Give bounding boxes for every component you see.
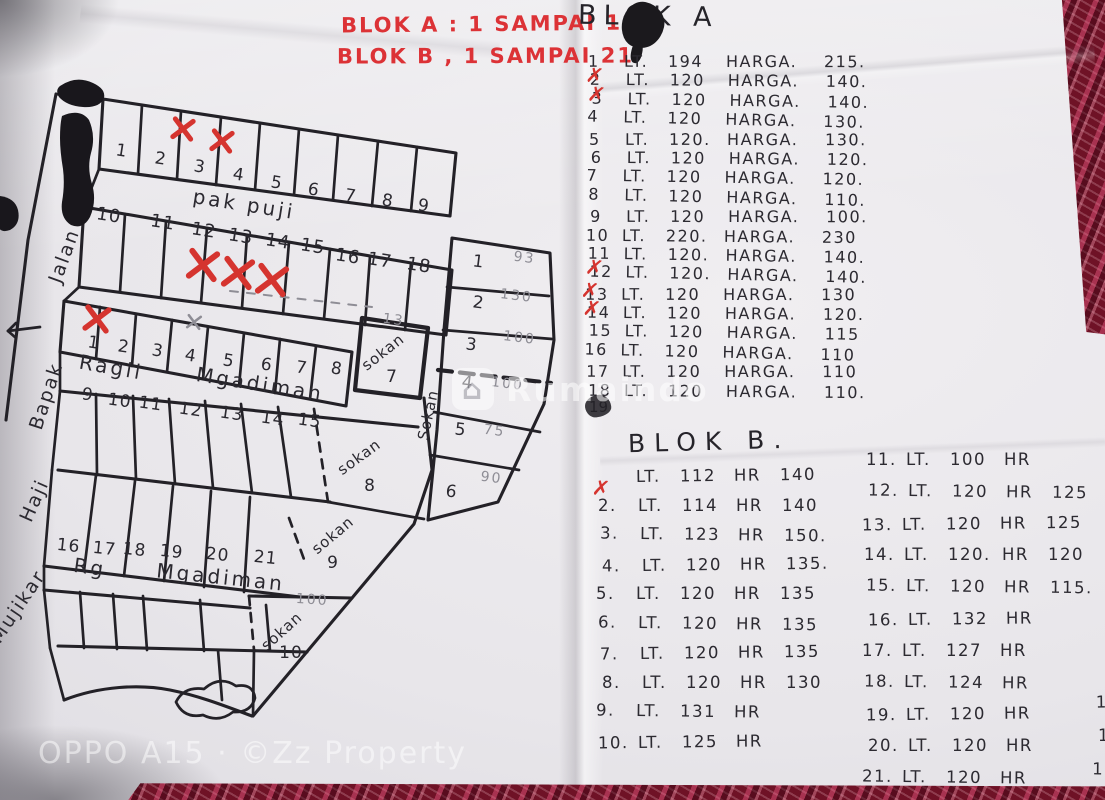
- lt-label: LT.: [642, 555, 686, 575]
- price-value: [1048, 688, 1104, 689]
- plot-no: 3.: [600, 524, 640, 543]
- lt-label: LT.: [638, 732, 682, 752]
- plot-no: 10: [586, 225, 622, 244]
- road-label-jalan: Mujikar: [0, 566, 50, 647]
- price-label: HARGA.: [728, 207, 826, 226]
- plot-no: 4: [587, 107, 623, 127]
- plot-number: 17: [366, 248, 394, 273]
- list-row: 20.LT.120HR100: [868, 736, 1105, 768]
- plot-no: 12.: [868, 480, 908, 499]
- price-label: HARGA.: [727, 323, 825, 344]
- plot-area-pencil: 93: [513, 249, 537, 268]
- plot-no: 14✗: [587, 303, 623, 322]
- list-row: 13.LT.120HR125: [862, 512, 1102, 547]
- lt-label: LT.: [906, 450, 950, 469]
- lt-label: LT.: [625, 263, 669, 283]
- price-value: 120: [1048, 545, 1104, 564]
- lt-value: 120: [670, 71, 728, 91]
- plot-no: 14.: [864, 545, 904, 564]
- camera-watermark: OPPO A15 · ©Zz Property: [38, 736, 467, 771]
- plot-number: 7: [386, 367, 398, 387]
- price-label: HARGA.: [724, 168, 822, 189]
- lt-value: 132: [952, 609, 1006, 629]
- price-label: HR: [1006, 482, 1052, 502]
- plot-number: 6: [445, 481, 459, 502]
- price-label: HR: [736, 614, 782, 634]
- lt-value: 120: [950, 577, 1004, 597]
- plot-number: 15: [299, 234, 327, 259]
- lt-value: 120.: [668, 245, 726, 265]
- price-value: 100: [1096, 692, 1105, 712]
- price-label: HARGA.: [726, 382, 824, 402]
- lt-label: LT.: [908, 481, 952, 501]
- plot-no: 5: [589, 129, 625, 148]
- lt-value: 120: [952, 481, 1006, 501]
- plot-no: 4.: [602, 555, 642, 574]
- list-row: 13✗LT.120HARGA.130: [585, 284, 891, 304]
- plot-no: 8.: [602, 673, 642, 692]
- price-value: 135.: [786, 553, 842, 573]
- price-label: HARGA.: [725, 304, 823, 324]
- list-row: 16.LT.132HR: [868, 608, 1105, 643]
- price-value: 125: [1046, 512, 1102, 532]
- price-label: HARGA.: [723, 285, 821, 304]
- lt-label: LT.: [627, 148, 671, 167]
- price-label: HR: [1004, 577, 1050, 597]
- plot-number: 14: [264, 229, 292, 254]
- price-label: HARGA.: [726, 52, 824, 71]
- lt-value: 120: [946, 768, 1000, 788]
- list-row: 3.LT.123HR150.: [600, 524, 840, 556]
- lt-label: LT.: [620, 340, 664, 360]
- x-mark: [85, 307, 109, 331]
- lt-value: 120.: [669, 129, 727, 148]
- plot-no: 11.: [866, 450, 906, 469]
- price-value: 120.: [823, 305, 893, 325]
- plot-number: 1: [472, 251, 486, 272]
- lt-label: LT.: [624, 244, 668, 264]
- lt-value: 125: [682, 731, 736, 751]
- lt-value: 120: [680, 584, 734, 603]
- lt-value: 127: [946, 641, 1000, 660]
- plot-no: 9.: [596, 701, 636, 720]
- plot-no: 9: [590, 207, 626, 226]
- lt-label: LT.: [621, 284, 665, 303]
- price-value: 115.: [1050, 578, 1105, 598]
- plot-number: 1: [114, 140, 129, 162]
- lt-label: LT.: [902, 514, 946, 534]
- list-row: 18.LT.124HR: [864, 671, 1104, 706]
- plot-number: 5: [454, 419, 468, 440]
- lt-label: LT.: [623, 108, 667, 128]
- price-label: HR: [740, 554, 786, 574]
- x-mark: [173, 119, 193, 139]
- price-label: HARGA.: [727, 130, 825, 149]
- plot-number: 18: [122, 539, 148, 561]
- plot-number: 2: [153, 148, 168, 170]
- price-label: HARGA.: [725, 110, 823, 131]
- lt-value: 123: [684, 525, 738, 545]
- plot-no: 10.: [598, 732, 638, 751]
- plot-number: 4: [183, 345, 198, 367]
- plot-number: 13: [227, 224, 255, 249]
- lt-value: 120.: [948, 545, 1002, 564]
- price-label: HR: [740, 673, 786, 692]
- price-label: HR: [1004, 704, 1050, 724]
- price-label: HR: [1002, 545, 1048, 564]
- plot-number: 12: [178, 399, 204, 422]
- plot-number: 8: [364, 476, 376, 496]
- plot-no: 20.: [868, 736, 908, 755]
- lt-value: 120: [668, 186, 726, 206]
- price-value: 130.: [825, 130, 895, 149]
- price-value: 140: [780, 465, 836, 485]
- road-label-jalan: Bapak: [25, 360, 67, 433]
- price-value: 140.: [823, 247, 893, 267]
- price-value: 125: [1052, 483, 1105, 503]
- list-row: 4.LT.120HR135.: [602, 553, 842, 585]
- plot-area-pencil: 90: [480, 469, 504, 488]
- plot-no: 21.: [862, 767, 902, 786]
- lt-label: LT.: [624, 185, 668, 205]
- list-row: 21.LT.120HR100: [862, 767, 1102, 800]
- lt-label: LT.: [623, 303, 667, 322]
- plot-no: 3✗: [591, 88, 627, 108]
- price-label: HR: [738, 525, 784, 545]
- plot-number: 15: [297, 410, 323, 433]
- price-label: HR: [1004, 450, 1050, 469]
- plot-number: 2: [472, 292, 486, 313]
- lt-label: LT.: [622, 225, 666, 244]
- plot-no: 16: [584, 339, 620, 359]
- price-value: 150.: [784, 526, 840, 546]
- price-label: HARGA.: [729, 91, 827, 112]
- plot-area-pencil: 100: [502, 328, 536, 348]
- list-row: 7.LT.120HR135: [600, 642, 840, 674]
- price-value: 110: [822, 362, 892, 381]
- lt-value: 120: [671, 90, 729, 110]
- plot-number: 10: [279, 643, 303, 663]
- price-value: 215.: [824, 52, 894, 71]
- list-row: 9.LT.131HR: [596, 701, 836, 733]
- lt-label: LT.: [624, 52, 668, 71]
- plot-no: 7: [586, 166, 622, 186]
- lt-value: 131: [680, 702, 734, 722]
- plot-no: 15: [589, 321, 625, 341]
- plot-number: 12: [190, 218, 218, 243]
- plot-no: 16.: [868, 610, 908, 629]
- price-label: HR: [734, 465, 780, 485]
- price-value: 140.: [826, 72, 896, 92]
- lt-value: 120: [686, 554, 740, 574]
- lt-label: LT.: [626, 70, 670, 89]
- lt-label: LT.: [908, 736, 952, 755]
- price-label: HR: [736, 731, 782, 751]
- plot-no: 6.: [598, 612, 638, 631]
- list-row: 12.LT.120HR125: [868, 480, 1105, 515]
- list-row: 19.LT.120HR100: [866, 703, 1105, 738]
- plot-number: 14: [260, 408, 286, 431]
- road-label-rg: Rg: [72, 553, 108, 581]
- price-label: HARGA.: [724, 226, 822, 246]
- price-label: HARGA.: [729, 149, 827, 169]
- lt-value: 120: [667, 303, 725, 323]
- price-label: HARGA.: [728, 71, 826, 91]
- lt-label: LT.: [906, 705, 950, 725]
- lt-value: 120: [671, 148, 729, 168]
- plot-no: 19.: [866, 705, 906, 724]
- plot-number: 4: [231, 164, 246, 186]
- price-label: HARGA.: [727, 265, 825, 286]
- lt-label: LT.: [904, 545, 948, 564]
- plot-area-pencil: 100: [295, 591, 329, 609]
- price-label: HARGA.: [726, 187, 824, 208]
- plot-no: 18.: [864, 671, 904, 690]
- price-value: 115: [825, 325, 895, 345]
- price-label: HR: [1006, 736, 1052, 755]
- price-value: 100: [1098, 726, 1105, 745]
- plot-number: 2: [116, 336, 131, 358]
- lt-label: LT.: [622, 167, 666, 187]
- price-value: 120.: [827, 150, 897, 170]
- x-mark: [224, 259, 252, 287]
- price-value: [1052, 623, 1105, 624]
- price-label: HR: [736, 496, 782, 515]
- sokan-plot-label: sokan: [334, 435, 384, 478]
- plot-number: 7: [294, 357, 309, 379]
- plot-no: 6: [591, 148, 627, 167]
- price-label: HR: [1002, 673, 1048, 693]
- sokan-plot-label: sokan: [358, 330, 408, 374]
- plot-no: 8: [588, 184, 624, 204]
- lt-value: 120: [950, 704, 1004, 724]
- plot-number: 5: [269, 172, 284, 194]
- lt-label: LT.: [638, 613, 682, 633]
- lt-value: 100: [950, 450, 1004, 469]
- list-row: 10.LT.125HR: [598, 730, 838, 762]
- x-mark: [212, 131, 232, 151]
- photo-of-site-plan-document: 1234567891011121314151617181234567891011…: [0, 0, 1105, 800]
- lt-value: 120: [684, 643, 738, 663]
- price-value: 130: [786, 673, 842, 692]
- list-row: 11.LT.100HR: [866, 450, 1105, 482]
- plot-no: 17.: [862, 641, 902, 660]
- plot-number: 8: [329, 358, 344, 380]
- lt-label: LT.: [908, 609, 952, 629]
- red-x-mark: ✗: [584, 257, 606, 281]
- price-value: 135: [782, 614, 838, 634]
- lt-label: LT.: [625, 129, 669, 148]
- lt-value: 124: [948, 672, 1002, 692]
- plot-number: 9: [327, 553, 339, 573]
- lt-label: LT.: [636, 466, 680, 486]
- price-label: HARGA.: [724, 362, 822, 381]
- lt-label: LT.: [627, 89, 671, 109]
- plot-number: 3: [150, 340, 165, 362]
- price-label: HR: [1000, 768, 1046, 788]
- blok-a-price-list: 1LT.194HARGA.215.2✗LT.120HARGA.140.3✗LT.…: [584, 50, 894, 403]
- list-row: ✗LT.112HR140: [596, 465, 836, 497]
- list-row: 5LT.120.HARGA.130.: [589, 129, 895, 149]
- plot-no: 13.: [862, 515, 902, 534]
- list-row: 5.LT.120HR135: [596, 584, 836, 614]
- price-value: 140: [782, 496, 838, 515]
- lt-label: LT.: [625, 322, 669, 342]
- plot-number: 3: [192, 156, 207, 178]
- plot-number: 16: [334, 244, 362, 269]
- plot-number: 9: [80, 384, 94, 405]
- plot-no: 5.: [596, 584, 636, 603]
- price-label: HARGA.: [722, 343, 820, 364]
- price-label: HR: [734, 702, 780, 722]
- list-row: 9LT.120HARGA.100.: [590, 207, 896, 227]
- lt-label: LT.: [640, 524, 684, 544]
- lt-value: 120: [670, 207, 728, 226]
- lt-value: 120: [669, 322, 727, 342]
- lt-label: LT.: [636, 701, 680, 721]
- road-label-ragil: Ragil: [77, 350, 145, 385]
- list-row: 15.LT.120HR115.: [866, 576, 1105, 611]
- lt-value: 120: [666, 167, 724, 187]
- lt-value: 112: [680, 466, 734, 486]
- list-row: 6.LT.120HR135: [598, 612, 838, 644]
- price-value: 135: [784, 642, 840, 662]
- lt-value: 194: [668, 52, 726, 71]
- lt-label: LT.: [626, 207, 670, 226]
- list-row: 14.LT.120.HR120: [864, 545, 1104, 577]
- lt-label: LT.: [636, 584, 680, 603]
- list-row: 17.LT.127HR: [862, 641, 1102, 673]
- price-label: HR: [1006, 608, 1052, 628]
- lt-value: 120: [667, 109, 725, 129]
- plot-area-pencil: 75: [483, 422, 507, 441]
- blok-b-price-list-right: 11.LT.100HR12.LT.120HR12513.LT.120HR1251…: [862, 450, 1102, 800]
- plot-number: 21: [253, 547, 279, 569]
- plot-number: 13: [219, 403, 245, 426]
- lt-label: LT.: [902, 767, 946, 787]
- price-value: [780, 718, 836, 719]
- plot-number: 3: [465, 334, 479, 355]
- price-label: HR: [1000, 513, 1046, 533]
- site-watermark: ⌂ Rumaindo: [452, 368, 709, 410]
- plot-number: 18: [405, 253, 433, 278]
- lt-value: 120: [946, 513, 1000, 533]
- lt-label: LT.: [640, 643, 684, 663]
- lt-label: LT.: [902, 641, 946, 660]
- lt-value: 114: [682, 496, 736, 515]
- price-label: HR: [734, 584, 780, 603]
- plot-no: 2.: [598, 496, 638, 515]
- x-mark: [258, 266, 286, 294]
- plot-number: 11: [149, 210, 177, 235]
- lt-value: 220.: [666, 226, 724, 246]
- plot-area-pencil: 13: [382, 311, 406, 330]
- lt-value: 120: [682, 613, 736, 633]
- lt-label: LT.: [904, 672, 948, 692]
- lt-value: 120: [664, 341, 722, 361]
- blok-b-price-list-left: ✗LT.112HR1402.LT.114HR1403.LT.123HR150.4…: [596, 466, 836, 761]
- price-value: 100: [1092, 759, 1105, 779]
- price-value: 230: [822, 227, 892, 247]
- lt-label: LT.: [638, 496, 682, 515]
- price-value: 140.: [827, 92, 897, 112]
- red-x-mark: ✗: [582, 298, 604, 322]
- lt-value: 120.: [669, 264, 727, 284]
- red-x-mark: ✗: [586, 83, 608, 107]
- list-row: 2.LT.114HR140: [598, 496, 838, 526]
- lt-label: LT.: [642, 673, 686, 692]
- lt-value: 120: [665, 285, 723, 304]
- price-value: 120.: [822, 170, 892, 190]
- price-value: [782, 745, 838, 746]
- site-watermark-text: Rumaindo: [506, 370, 709, 409]
- price-value: 135: [780, 584, 836, 603]
- plot-number: 10: [95, 203, 123, 228]
- price-label: HARGA.: [726, 246, 824, 267]
- blok-b-title: BLOK B.: [628, 425, 791, 459]
- plot-number: 10: [107, 390, 133, 413]
- plot-no: 15.: [866, 576, 906, 595]
- plot-no: 7.: [600, 644, 640, 663]
- sokan-plot-label: sokan: [308, 512, 357, 557]
- lt-value: 120: [686, 673, 740, 692]
- price-value: 110.: [824, 382, 894, 402]
- list-row: 1LT.194HARGA.215.: [588, 52, 894, 72]
- lt-value: 120: [952, 736, 1006, 755]
- list-row: 8.LT.120HR130: [602, 673, 842, 703]
- house-logo-icon: ⌂: [452, 368, 494, 410]
- plot-number: 11: [138, 393, 164, 416]
- price-value: 130: [821, 285, 891, 304]
- price-label: HR: [1000, 641, 1046, 660]
- price-value: 100.: [826, 207, 896, 226]
- price-label: HR: [738, 642, 784, 662]
- lt-label: LT.: [906, 576, 950, 596]
- plot-area-pencil: 130: [499, 286, 533, 306]
